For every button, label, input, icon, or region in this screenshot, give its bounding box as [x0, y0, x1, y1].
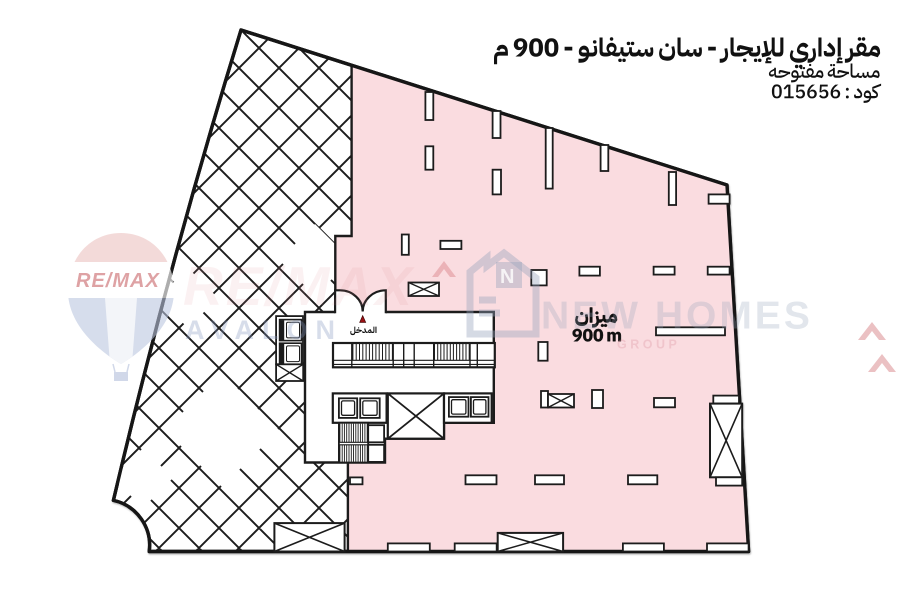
svg-text:RE/MAX: RE/MAX — [76, 270, 160, 292]
